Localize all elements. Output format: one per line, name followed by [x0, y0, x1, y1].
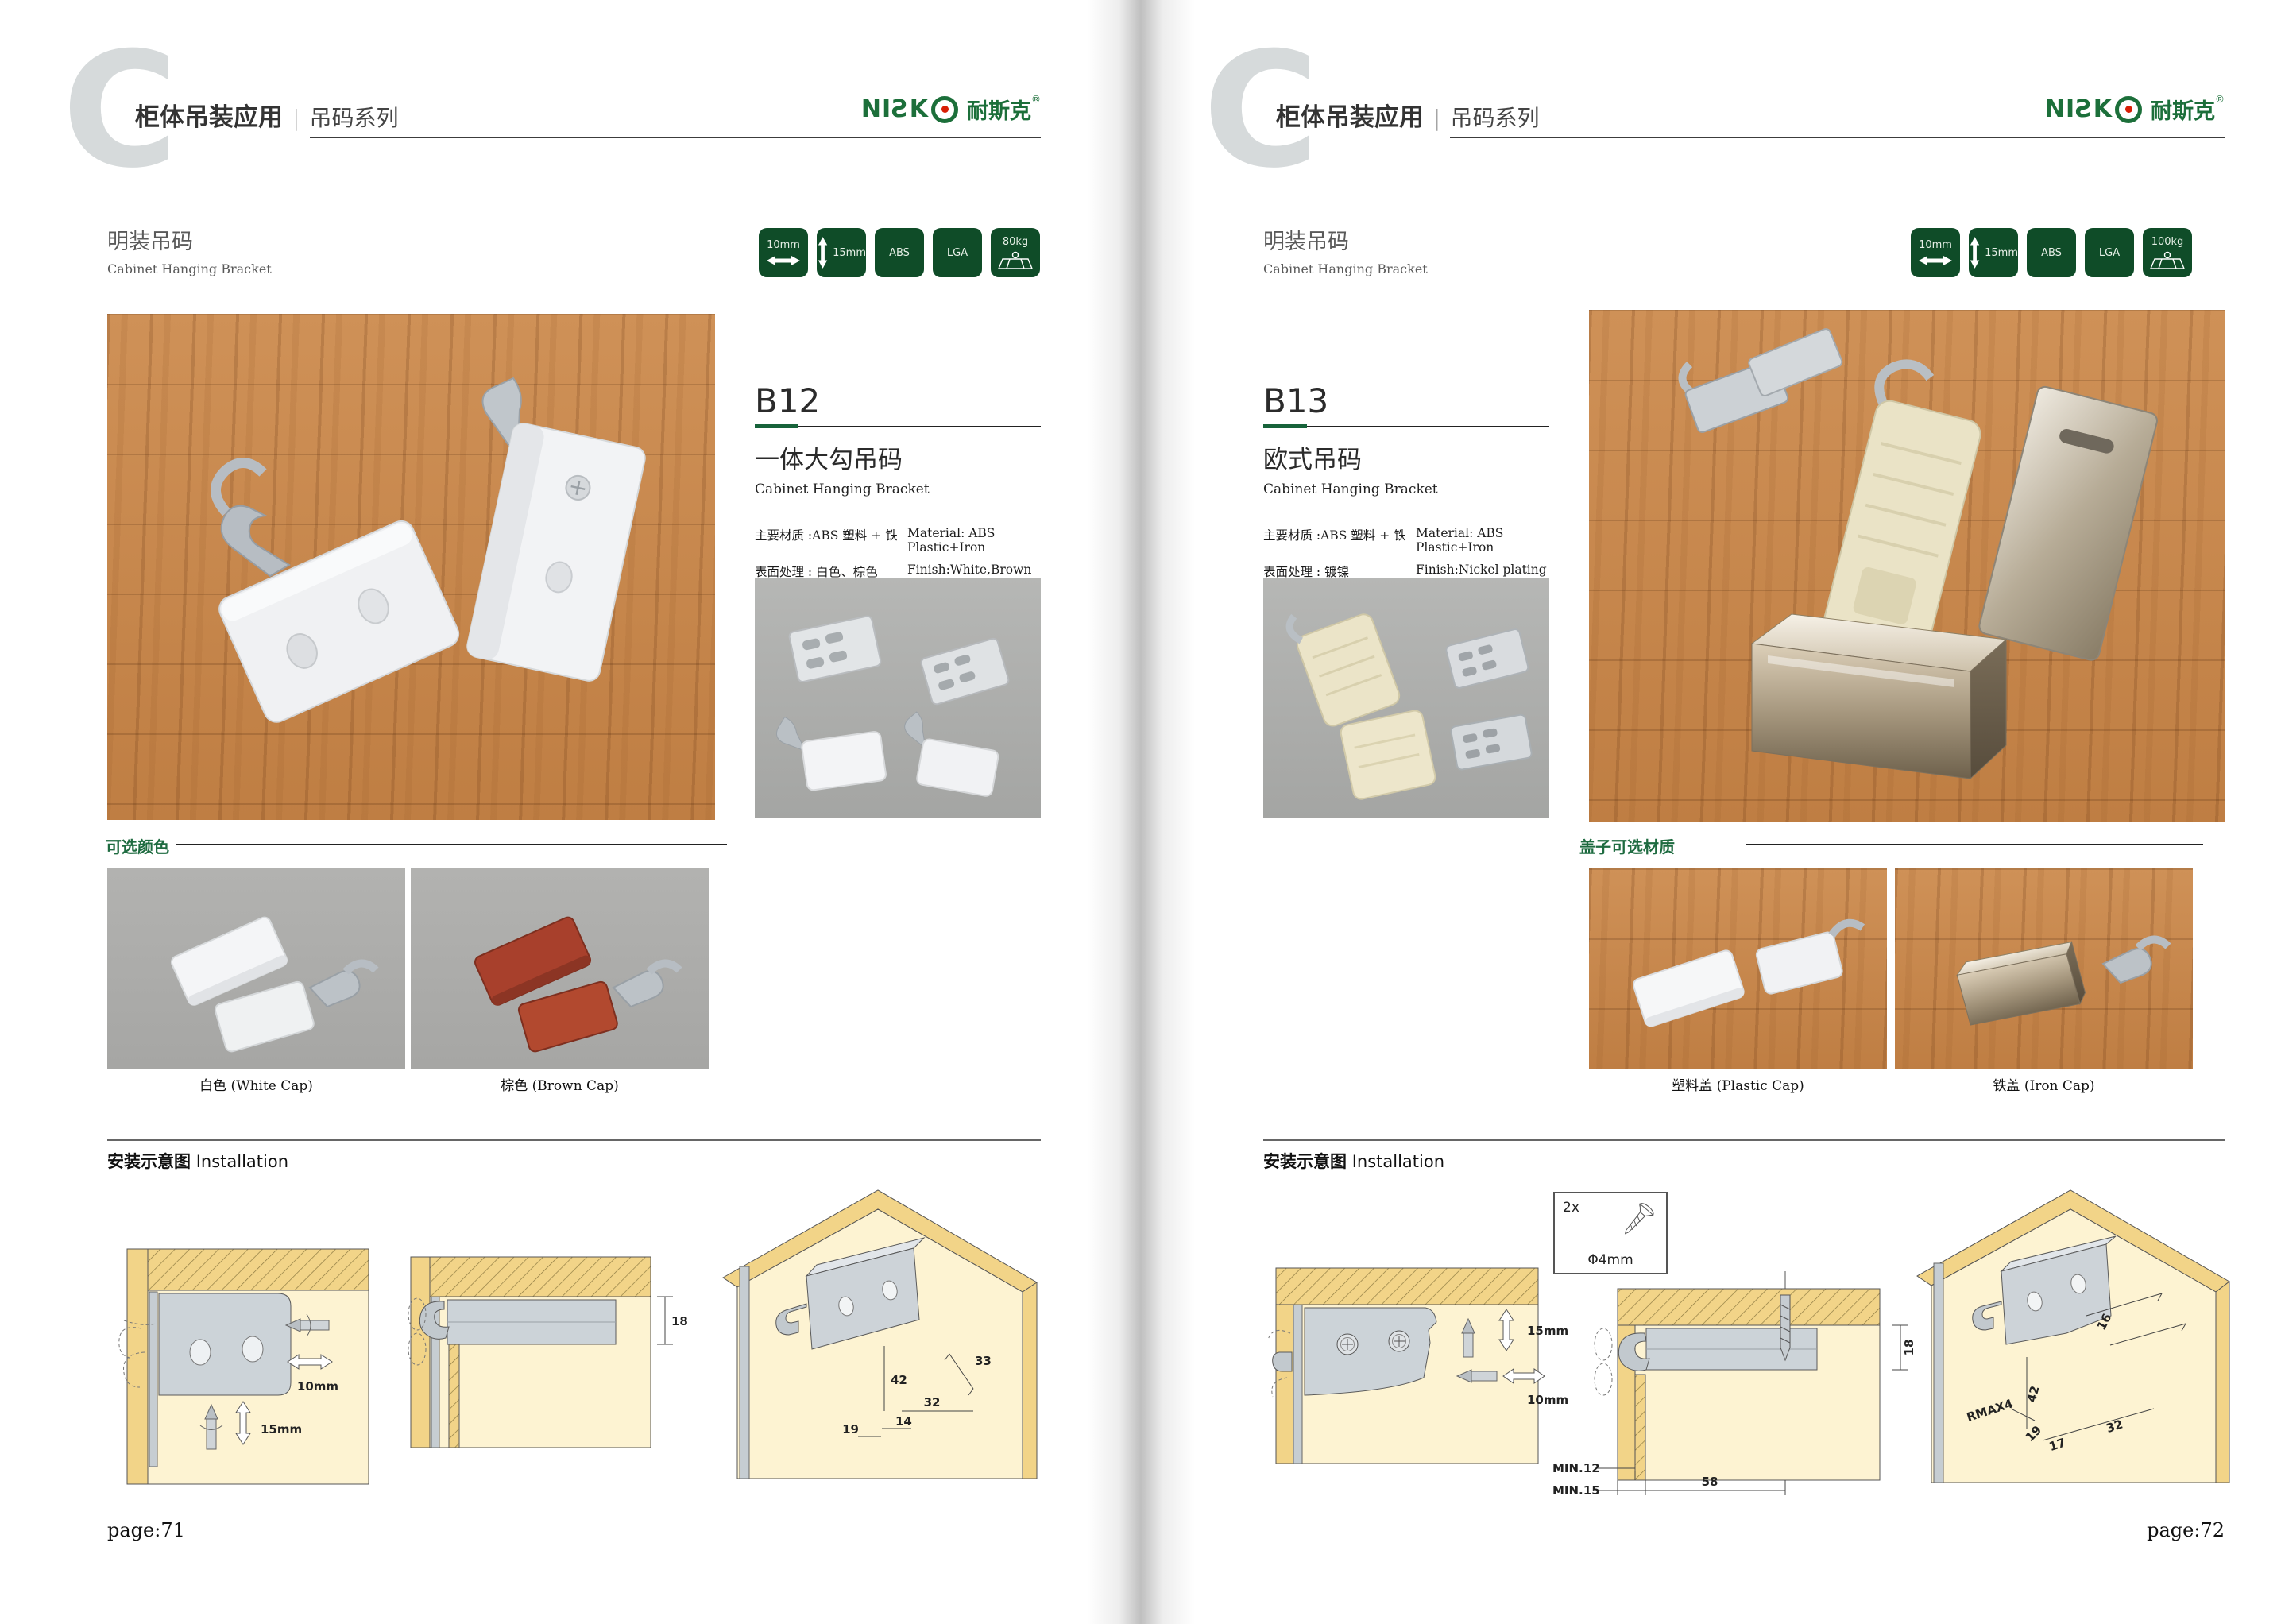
bracket-plate	[159, 1293, 291, 1395]
white-bracket	[1754, 920, 1873, 996]
spec-badges: 10mm 15mm ABS LGA 80kg	[759, 228, 1040, 277]
wall-rail-part	[920, 637, 1010, 705]
material-swatch-plastic	[1589, 868, 1887, 1069]
badge-height: 15mm	[1969, 228, 2018, 277]
page-number: page:71	[107, 1519, 185, 1541]
bracket-part	[775, 704, 887, 794]
install-rule	[1263, 1139, 2225, 1141]
series-title: 吊码系列	[309, 101, 398, 133]
dim-label: 15mm	[261, 1422, 302, 1436]
load-scale-icon	[2149, 251, 2186, 270]
swatch-brown-illustration	[411, 868, 709, 1069]
dim-label: 10mm	[297, 1379, 338, 1394]
badge-load-label: 100kg	[2151, 236, 2184, 248]
metal-hook	[2103, 939, 2168, 983]
swatch-caption-iron: 铁盖 (Iron Cap)	[1895, 1074, 2193, 1094]
badge-material-label: ABS	[2041, 247, 2062, 259]
section-subtitle: Cabinet Hanging Bracket	[107, 261, 272, 276]
options-label: 可选颜色	[106, 834, 169, 857]
brown-bracket	[517, 980, 619, 1053]
product-info: B12 一体大勾吊码 Cabinet Hanging Bracket 主要材质 …	[755, 385, 1041, 580]
screw-icon	[1614, 1198, 1660, 1244]
install-label-cn: 安装示意图	[107, 1152, 191, 1171]
plastic-cap	[1632, 949, 1746, 1027]
badge-width-label: 10mm	[767, 239, 800, 251]
swatch-caption-brown: 棕色 (Brown Cap)	[411, 1074, 709, 1094]
metal-rail-part	[1747, 327, 1843, 397]
material-swatch-iron	[1895, 868, 2193, 1069]
section-intro: 明装吊码 Cabinet Hanging Bracket	[107, 224, 272, 276]
white-bracket	[214, 980, 315, 1053]
code-rule-accent	[755, 424, 798, 428]
install-diagram-1: 15mm 10mm	[1268, 1257, 1586, 1479]
logo-registered-mark: ®	[2215, 94, 2225, 105]
section-title: 明装吊码	[1263, 224, 1428, 255]
logo-red-dot	[941, 106, 949, 113]
logo-registered-mark: ®	[1031, 94, 1041, 105]
badge-material: ABS	[2027, 228, 2076, 277]
spec-material-en: Material: ABS Plastic+Iron	[907, 526, 1041, 555]
plastic-body	[1816, 358, 1993, 663]
badge-height: 15mm	[817, 228, 866, 277]
install-rule	[107, 1139, 1041, 1141]
screw-head	[1389, 1331, 1409, 1351]
product-code-rule	[755, 424, 1041, 428]
dim-lines	[657, 1297, 673, 1344]
badge-width: 10mm	[759, 228, 808, 277]
catalog-spread: C 柜体吊装应用 | 吊码系列 NIƧK 耐斯克 ® 明装吊码 Cabinet …	[0, 0, 2281, 1624]
code-rule-accent	[1263, 424, 1307, 428]
dim-label: 42	[891, 1373, 907, 1387]
options-rule	[176, 844, 727, 845]
options-rule	[1746, 844, 2203, 845]
logo-text-latin: NIƧK	[861, 95, 929, 123]
vertical-arrow-icon	[1969, 234, 1981, 271]
badge-width: 10mm	[1911, 228, 1960, 277]
badge-cert-label: LGA	[947, 247, 968, 259]
screw-vertical	[1780, 1295, 1790, 1360]
section-intro: 明装吊码 Cabinet Hanging Bracket	[1263, 224, 1428, 276]
page-header: 柜体吊装应用 | 吊码系列	[135, 97, 398, 133]
install-diagram-2: 18	[401, 1238, 691, 1476]
page-title: 柜体吊装应用	[135, 97, 283, 133]
wall-rail-part	[1450, 714, 1532, 771]
swatch-caption-plastic: 塑料盖 (Plastic Cap)	[1589, 1074, 1887, 1094]
dim-label: 58	[1702, 1475, 1718, 1489]
wall-rail-part	[1445, 628, 1529, 689]
spec-material-cn: 主要材质 :ABS 塑料 + 铁	[755, 526, 907, 555]
header-rule	[1450, 137, 2225, 138]
swatch-plastic-illustration	[1589, 868, 1887, 1069]
logo-red-dot	[2125, 106, 2132, 113]
logo-text-latin: NIƧK	[2045, 95, 2113, 123]
product-name: 欧式吊码	[1263, 439, 1549, 475]
install-label-en: Installation	[196, 1152, 288, 1171]
badge-load: 80kg	[991, 228, 1040, 277]
spec-material-cn: 主要材质 :ABS 塑料 + 铁	[1263, 526, 1416, 555]
bracket-part	[895, 710, 1003, 797]
logo-o-icon	[2115, 96, 2142, 123]
book-spine-fold	[1087, 0, 1195, 1624]
product-specs: 主要材质 :ABS 塑料 + 铁 Material: ABS Plastic+I…	[1263, 526, 1549, 580]
install-label-cn: 安装示意图	[1263, 1152, 1347, 1171]
screw-head	[1337, 1334, 1358, 1355]
plastic-bracket-part	[1340, 710, 1436, 801]
badge-material: ABS	[875, 228, 924, 277]
install-diagram-2: 18 MIN.12 MIN.15 58	[1551, 1271, 1932, 1510]
install-diagram-1: 10mm 15mm	[118, 1233, 380, 1495]
badge-load: 100kg	[2143, 228, 2192, 277]
badge-width-label: 10mm	[1919, 239, 1952, 251]
install-diagram-3: 16 42 RMAX4 19 17 32	[1908, 1174, 2241, 1508]
header-rule	[310, 137, 1041, 138]
product-code: B12	[755, 385, 1041, 418]
title-divider: |	[1433, 105, 1440, 131]
metal-hook	[613, 963, 679, 1007]
install-label: 安装示意图 Installation	[107, 1149, 288, 1173]
metal-hook	[310, 963, 376, 1007]
section-title: 明装吊码	[107, 224, 272, 255]
catalog-page-left: C 柜体吊装应用 | 吊码系列 NIƧK 耐斯克 ® 明装吊码 Cabinet …	[0, 0, 1140, 1624]
logo-text-cjk: 耐斯克	[2151, 94, 2215, 125]
wall-rail-part	[788, 615, 881, 682]
badge-cert: LGA	[933, 228, 982, 277]
install-label: 安装示意图 Installation	[1263, 1149, 1444, 1173]
product-photo-main	[107, 314, 715, 820]
product-code-rule	[1263, 424, 1549, 428]
spec-badges: 10mm 15mm ABS LGA 100kg	[1911, 228, 2192, 277]
product-specs: 主要材质 :ABS 塑料 + 铁 Material: ABS Plastic+I…	[755, 526, 1041, 580]
detail-photo-illustration	[1263, 578, 1549, 818]
dim-label: MIN.12	[1552, 1461, 1600, 1475]
product-photo-illustration	[107, 314, 715, 820]
logo-text-cjk: 耐斯克	[967, 94, 1031, 125]
page-header: 柜体吊装应用 | 吊码系列	[1276, 97, 1539, 133]
badge-height-label: 15mm	[1985, 247, 2018, 259]
options-label: 盖子可选材质	[1579, 834, 1675, 857]
catalog-page-right: C 柜体吊装应用 | 吊码系列 NIƧK 耐斯克 ® 明装吊码 Cabinet …	[1141, 0, 2281, 1624]
page-number: page:72	[2015, 1519, 2225, 1541]
dim-label: 14	[895, 1414, 912, 1429]
product-name-en: Cabinet Hanging Bracket	[1263, 481, 1549, 497]
product-code: B13	[1263, 385, 1549, 418]
product-photo-detail	[1263, 578, 1549, 818]
horizontal-arrow-icon	[1917, 254, 1954, 267]
plastic-bracket-part	[1286, 592, 1402, 729]
badge-material-label: ABS	[889, 247, 910, 259]
swatch-iron-illustration	[1895, 868, 2193, 1069]
load-scale-icon	[997, 251, 1034, 270]
badge-cert-label: LGA	[2099, 247, 2120, 259]
iron-cap	[1954, 934, 2088, 1033]
swatch-white-illustration	[107, 868, 405, 1069]
detail-photo-illustration	[755, 578, 1041, 818]
dim-label: 33	[975, 1354, 992, 1368]
color-swatch-white	[107, 868, 405, 1069]
brand-logo: NIƧK 耐斯克 ®	[861, 94, 1041, 125]
badge-height-label: 15mm	[833, 247, 866, 259]
color-swatch-brown	[411, 868, 709, 1069]
badge-cert: LGA	[2085, 228, 2134, 277]
product-photo-main	[1589, 310, 2225, 822]
product-name: 一体大勾吊码	[755, 439, 1041, 475]
vertical-arrow-icon	[817, 234, 829, 271]
install-label-en: Installation	[1352, 1152, 1444, 1171]
install-diagram-3: 33 42 32 14 19	[711, 1173, 1049, 1498]
hook-outline-dashed	[1595, 1328, 1612, 1395]
horizontal-arrow-icon	[765, 254, 802, 267]
badge-load-label: 80kg	[1003, 236, 1028, 248]
metal-hook-flat	[215, 462, 289, 576]
dim-label: MIN.15	[1552, 1483, 1600, 1498]
white-bracket-standing	[466, 422, 648, 683]
page-title: 柜体吊装应用	[1276, 97, 1424, 133]
dim-label: 18	[671, 1314, 688, 1328]
dim-label: 32	[924, 1395, 941, 1409]
product-photo-illustration	[1589, 310, 2225, 822]
nickel-cap	[1752, 614, 2006, 779]
series-title: 吊码系列	[1450, 101, 1539, 133]
section-subtitle: Cabinet Hanging Bracket	[1263, 261, 1428, 276]
product-photo-detail	[755, 578, 1041, 818]
product-name-en: Cabinet Hanging Bracket	[755, 481, 1041, 497]
brand-logo: NIƧK 耐斯克 ®	[2045, 94, 2225, 125]
logo-o-icon	[931, 96, 958, 123]
euro-hook	[1273, 1352, 1292, 1371]
dim-label: 19	[842, 1422, 859, 1436]
title-divider: |	[292, 105, 300, 131]
nickel-cover	[1978, 385, 2159, 662]
swatch-caption-white: 白色 (White Cap)	[107, 1074, 405, 1094]
spec-material-en: Material: ABS Plastic+Iron	[1416, 526, 1549, 555]
screw-quantity: 2x	[1563, 1200, 1579, 1216]
product-info: B13 欧式吊码 Cabinet Hanging Bracket 主要材质 :A…	[1263, 385, 1549, 580]
